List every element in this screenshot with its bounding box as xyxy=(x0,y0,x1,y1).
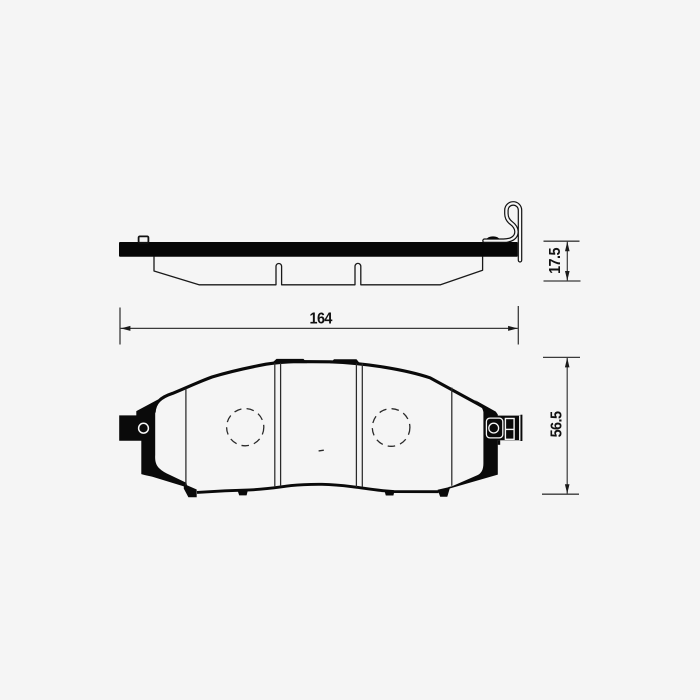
svg-text:164: 164 xyxy=(310,310,334,328)
svg-text:56.5: 56.5 xyxy=(548,411,566,437)
svg-text:17.5: 17.5 xyxy=(547,248,565,274)
